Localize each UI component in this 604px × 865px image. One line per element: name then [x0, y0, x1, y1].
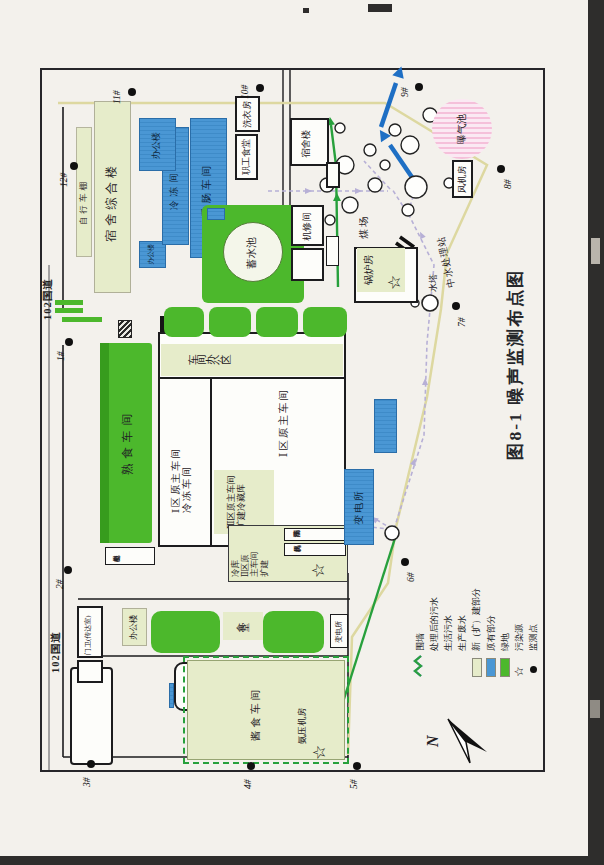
lawn [151, 611, 220, 653]
highway-label-west: 102国道 [50, 631, 62, 673]
sauce-workshop-label: 酱食车间 [250, 687, 262, 741]
green-area-swatch [500, 651, 510, 677]
monitor-label-6: 6# [406, 573, 416, 583]
pollution-star-ammonia: ☆ [311, 745, 328, 760]
monitor-dot-9 [415, 83, 423, 91]
site-map-landscape: 102国道 102国道 自行车棚 宿舍综合楼 办公楼 冷冻间 香肠车间 办公楼 … [0, 0, 604, 865]
blue-strip-small [169, 683, 174, 708]
boiler-label: 锅炉房 [363, 255, 374, 285]
compass-n-label: N [424, 735, 442, 747]
monitor-point-icon [530, 651, 537, 677]
hedge-strip [55, 308, 83, 313]
monitor-label-10: 10# [240, 85, 250, 99]
scan-edge-bottom [0, 856, 604, 865]
monitor-dot-12 [70, 162, 78, 170]
office-west-label: 办公楼 [129, 615, 139, 641]
complex-divider [160, 377, 344, 379]
dorm-complex-label: 宿舍综合楼 [105, 162, 118, 242]
monitor-label-9: 9# [400, 88, 410, 98]
map-legend: 围墙 处理后的污水 生活污水 生产废水 新（扩）建部分 原有部分 绿地 [413, 588, 541, 677]
building-misc-small [326, 236, 339, 266]
scan-mark-top-small [303, 8, 309, 13]
legend-item-green-area: 绿地 [498, 588, 512, 677]
complex-divider [210, 379, 212, 545]
green-patch [256, 307, 298, 337]
monitor-dot-11 [128, 88, 136, 96]
reservoir-blue-tab [207, 208, 225, 220]
monitor-label-12: 12# [59, 173, 69, 187]
green-patch [303, 307, 347, 337]
gatehouse-label: 门卫(传达室) [85, 615, 93, 655]
monitor-dot-10 [256, 84, 264, 92]
cooked-food-label: 熟食车间 [121, 409, 134, 475]
scanned-page: 102国道 102国道 自行车棚 宿舍综合楼 办公楼 冷冻间 香肠车间 办公楼 … [0, 0, 604, 865]
reservoir-label: 蓄水池 [246, 238, 258, 270]
canteen-label: 食堂 [228, 622, 236, 633]
north-arrow-icon [448, 719, 487, 763]
legend-item-pollution-source: ☆ 污染源 [512, 588, 526, 677]
monitor-dot-2 [64, 566, 72, 574]
monitor-dot-4 [247, 762, 255, 770]
scan-mark-top [368, 4, 392, 12]
monitor-label-11: 11# [112, 90, 122, 104]
building-ammonia-mid [284, 543, 346, 556]
junction-circle [385, 526, 399, 540]
monitor-label-1: 1# [56, 352, 66, 362]
green-patch [164, 307, 204, 337]
highway-label-east: 102国道 [42, 278, 54, 320]
building-original-part [374, 399, 397, 453]
cold-room-label: 冷冻间 [169, 170, 180, 211]
hedge-strip [62, 317, 102, 322]
hedge-strip [55, 300, 83, 305]
map-title: 图8-1 噪声监测布点图 [506, 268, 526, 460]
monitor-label-8: 8# [503, 180, 513, 190]
zone3-label: Ⅲ区原主车间 扩建冷藏库 [226, 475, 246, 529]
legend-item-new-build: 新（扩）建部分 [470, 588, 484, 677]
zone1-label: Ⅰ区原主车间 冷冻车间 [170, 447, 192, 513]
monitor-label-4: 4# [243, 780, 253, 790]
zone1b-label: Ⅰ区原主车间 [278, 388, 290, 457]
coal-yard-label: 煤场 [358, 215, 369, 239]
green-patch [209, 307, 251, 337]
lawn [263, 611, 324, 653]
scan-blob [591, 238, 600, 264]
monitor-dot-5 [353, 762, 361, 770]
office-blue-label: 办公楼 [151, 132, 161, 159]
aeration-pool-label: 曝气池 [456, 114, 467, 144]
legend-item-production-wastewater: 生产废水 [456, 588, 470, 677]
monitor-dot-3 [87, 760, 95, 768]
original-part-swatch [486, 651, 496, 677]
monitor-label-5: 5# [349, 780, 359, 790]
staff-canteen-label: 职工食堂 [241, 139, 251, 175]
monitor-dot-6 [401, 558, 409, 566]
scan-edge-right [588, 0, 604, 865]
scan-blob [590, 700, 600, 718]
substation-west-label: 变电所 [335, 621, 343, 644]
building-public-substation [105, 547, 155, 565]
legend-item-treated-sewage: 处理后的污水 [427, 588, 441, 677]
fan-room-label: 风机房 [457, 166, 467, 193]
building-car-wash [284, 528, 346, 541]
legend-item-domestic-sewage: 生活污水 [441, 588, 455, 677]
building-dormitory-wing [326, 162, 340, 188]
machine-repair-label: 机修间 [302, 213, 313, 242]
gatehouse-box-empty [77, 660, 103, 683]
bicycle-shed-label: 自行车棚 [79, 179, 89, 225]
water-tower-circle [422, 295, 438, 311]
water-tower-label: 水塔 [428, 274, 438, 292]
pollution-star-boiler: ☆ [386, 275, 403, 290]
substation-blue-label: 变电所 [353, 489, 364, 525]
dormitory-label: 宿舍楼 [301, 130, 312, 159]
monitor-dot-8 [497, 165, 505, 173]
gate-mark-striped [118, 320, 132, 338]
monitor-label-7: 7# [457, 318, 467, 328]
building-misc [291, 248, 324, 281]
laundry-label: 洗衣房 [242, 101, 252, 128]
pollution-source-icon: ☆ [512, 651, 527, 677]
monitor-dot-1 [65, 338, 73, 346]
monitor-label-2: 2# [55, 580, 65, 590]
office-blue-small-label: 办公楼 [148, 244, 156, 265]
new-build-swatch [472, 651, 482, 677]
workshop-office-label: 车间办公区 [178, 354, 223, 366]
pollution-star-annex: ☆ [310, 563, 327, 578]
legend-item-original-part: 原有部分 [484, 588, 498, 677]
legend-item-monitor-point: 监测点 [527, 588, 541, 677]
cooked-food-band [100, 343, 109, 543]
zone2-label: 冷库 Ⅱ区原 主车间 扩建 [231, 552, 269, 578]
monitor-dot-7 [452, 302, 460, 310]
monitor-label-3: 3# [82, 778, 92, 788]
ammonia-west-label: 氨压机房 [297, 708, 307, 744]
